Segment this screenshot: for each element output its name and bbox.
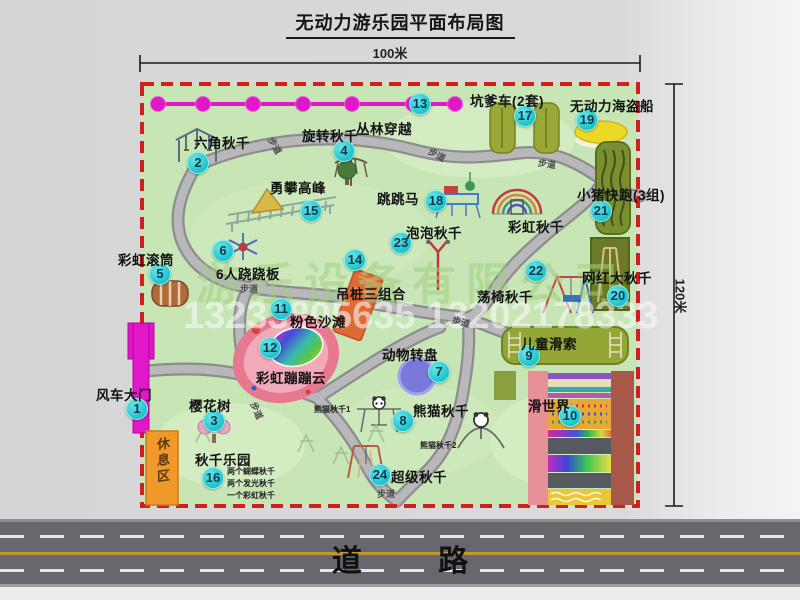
- attraction-label: 网红大秋千: [582, 267, 652, 287]
- path-label: 步道: [265, 134, 285, 156]
- attraction-badge-20: 20: [607, 285, 629, 307]
- below-road-strip: [0, 587, 800, 600]
- attraction-badge-14: 14: [344, 249, 366, 271]
- attraction-badge-15: 15: [300, 200, 322, 222]
- page-title-row: 无动力游乐园平面布局图: [0, 9, 800, 39]
- page-title: 无动力游乐园平面布局图: [286, 9, 515, 39]
- attraction-badge-8: 8: [392, 410, 414, 432]
- attraction-label: 6人跷跷板: [216, 263, 280, 283]
- attraction-label: 彩虹秋千: [508, 216, 564, 236]
- dimension-height-label: 120米: [672, 279, 691, 314]
- attraction-badge-16: 16: [202, 467, 224, 489]
- attraction-label: 风车大门: [96, 384, 152, 404]
- attraction-badge-24: 24: [369, 464, 391, 486]
- path-label: 步道: [537, 156, 557, 171]
- road-label: 道 路: [0, 536, 800, 580]
- attraction-label: 樱花树: [189, 395, 231, 415]
- path-label: 步道: [247, 400, 266, 422]
- attraction-label: 儿童滑索: [521, 333, 577, 353]
- attraction-sublabel: 两个蝴蝶秋千: [227, 466, 275, 477]
- playground-layout-map: 无动力游乐园平面布局图 100米 120米 游乐设备有限公司 132338056…: [0, 0, 800, 600]
- attraction-badge-11: 11: [270, 298, 292, 320]
- attraction-badge-13: 13: [409, 93, 431, 115]
- attraction-label: 无动力海盗船: [570, 95, 654, 115]
- path-label: 步道: [377, 487, 395, 500]
- attraction-label: 熊猫秋千: [413, 400, 469, 420]
- attraction-badge-6: 6: [212, 240, 234, 262]
- attraction-label: 超级秋千: [391, 466, 447, 486]
- attraction-label: 粉色沙滩: [290, 311, 346, 331]
- attraction-label: 旋转秋千: [302, 125, 358, 145]
- path-label: 步道: [240, 282, 258, 295]
- path-label: 步道: [451, 313, 472, 330]
- path-label: 步道: [426, 145, 448, 165]
- attraction-label: 滑世界: [528, 395, 570, 415]
- attraction-badge-22: 22: [525, 260, 547, 282]
- attraction-label: 彩虹蹦蹦云: [256, 367, 326, 387]
- attraction-badge-12: 12: [259, 337, 281, 359]
- attraction-label: 坑爹车(2套): [470, 90, 544, 110]
- attraction-badge-2: 2: [187, 152, 209, 174]
- attraction-badge-7: 7: [428, 361, 450, 383]
- attraction-label: 跳跳马: [377, 188, 419, 208]
- attraction-sublabel: 熊猫秋千2: [420, 440, 456, 451]
- attraction-label: 六角秋千: [194, 132, 250, 152]
- road: 道 路: [0, 519, 800, 587]
- attraction-label: 吊桩三组合: [336, 283, 406, 303]
- attraction-label: 彩虹滚筒: [118, 249, 174, 269]
- attraction-label: 小猪快跑(3组): [577, 184, 665, 204]
- attraction-badge-18: 18: [425, 190, 447, 212]
- dimension-width-label: 100米: [330, 43, 450, 62]
- attraction-sublabel: 熊猫秋千1: [314, 404, 350, 415]
- attraction-label: 泡泡秋千: [406, 222, 462, 242]
- attraction-sublabel: 一个彩虹秋千: [227, 490, 275, 501]
- attraction-label: 勇攀高峰: [270, 177, 326, 197]
- attraction-sublabel: 两个发光秋千: [227, 478, 275, 489]
- attraction-label: 动物转盘: [382, 344, 438, 364]
- attraction-label: 荡椅秋千: [477, 286, 533, 306]
- attraction-label: 丛林穿越: [356, 118, 412, 138]
